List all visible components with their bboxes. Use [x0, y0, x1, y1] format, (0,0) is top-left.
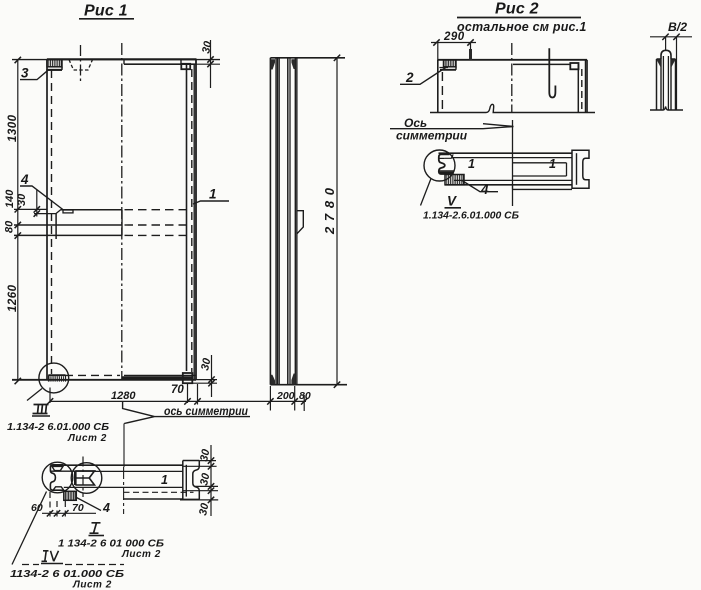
svg-text:Лист 2: Лист 2 — [121, 549, 161, 560]
svg-text:1: 1 — [161, 473, 168, 487]
svg-text:симметрии: симметрии — [396, 129, 468, 143]
svg-text:1134-2 6 01.000 СБ: 1134-2 6 01.000 СБ — [10, 569, 124, 580]
svg-text:В/2: В/2 — [668, 20, 687, 34]
svg-text:Рис 1: Рис 1 — [84, 3, 128, 20]
svg-text:1: 1 — [549, 157, 556, 171]
svg-text:70: 70 — [171, 384, 184, 396]
svg-text:140: 140 — [4, 189, 16, 208]
svg-text:Рис 2: Рис 2 — [495, 1, 539, 18]
svg-text:3: 3 — [21, 66, 29, 81]
svg-text:Лист 2: Лист 2 — [72, 580, 112, 590]
svg-text:1260: 1260 — [7, 284, 19, 312]
svg-text:30: 30 — [197, 501, 211, 516]
svg-text:1300: 1300 — [7, 114, 19, 142]
svg-text:80: 80 — [299, 390, 311, 402]
svg-text:Лист 2: Лист 2 — [67, 433, 107, 444]
svg-text:остальное см рис.1: остальное см рис.1 — [457, 20, 587, 34]
svg-text:4: 4 — [102, 501, 110, 515]
svg-text:80: 80 — [4, 220, 16, 233]
svg-text:4: 4 — [480, 182, 489, 197]
svg-text:290: 290 — [443, 31, 465, 43]
svg-text:70: 70 — [72, 502, 84, 514]
svg-text:1280: 1280 — [111, 390, 136, 402]
svg-text:200: 200 — [276, 390, 295, 402]
svg-text:1: 1 — [468, 157, 475, 171]
svg-text:1.134-2 6.01.000 СБ: 1.134-2 6.01.000 СБ — [7, 422, 109, 433]
svg-text:V: V — [447, 194, 457, 209]
svg-text:2780: 2780 — [322, 187, 337, 235]
svg-text:30: 30 — [200, 39, 214, 54]
svg-text:1: 1 — [209, 187, 217, 202]
svg-text:4: 4 — [20, 172, 29, 187]
svg-text:1.134-2.6.01.000 СБ: 1.134-2.6.01.000 СБ — [423, 211, 519, 222]
svg-text:1 134-2 6 01 000 СБ: 1 134-2 6 01 000 СБ — [58, 539, 164, 550]
svg-text:2: 2 — [405, 70, 414, 85]
